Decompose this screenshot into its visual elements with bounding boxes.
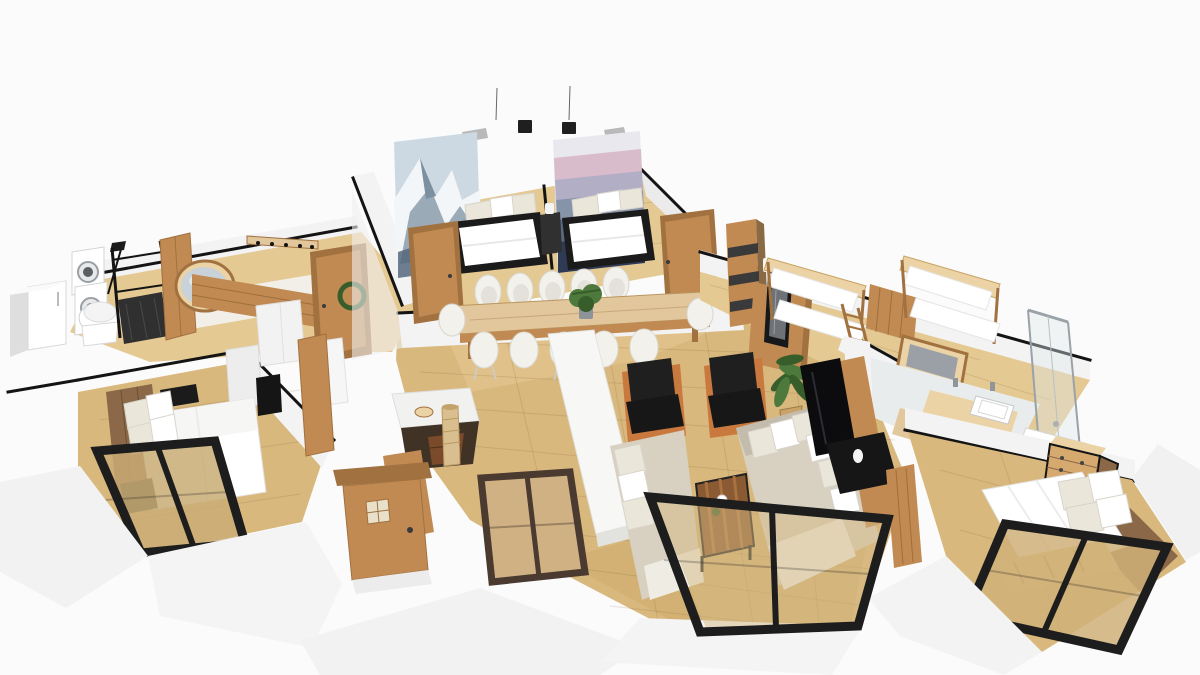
faucet <box>990 382 995 391</box>
wood-stool[interactable] <box>415 407 433 417</box>
toilet[interactable] <box>79 302 121 346</box>
ceiling-lamp-square <box>462 86 626 142</box>
floor-plan-stage <box>0 0 1200 675</box>
refrigerator[interactable] <box>10 281 66 357</box>
twin-bed-right[interactable] <box>562 188 655 270</box>
faucet <box>953 378 958 387</box>
rattan-floor-vase[interactable] <box>442 404 460 466</box>
armchair-1[interactable] <box>622 358 686 444</box>
bedroom-wall-tv[interactable] <box>256 374 282 416</box>
twin-bed-left[interactable] <box>452 193 548 274</box>
entry-door[interactable] <box>333 462 432 594</box>
kitchen-window[interactable] <box>481 472 585 582</box>
floor-plan-render <box>0 0 1200 675</box>
